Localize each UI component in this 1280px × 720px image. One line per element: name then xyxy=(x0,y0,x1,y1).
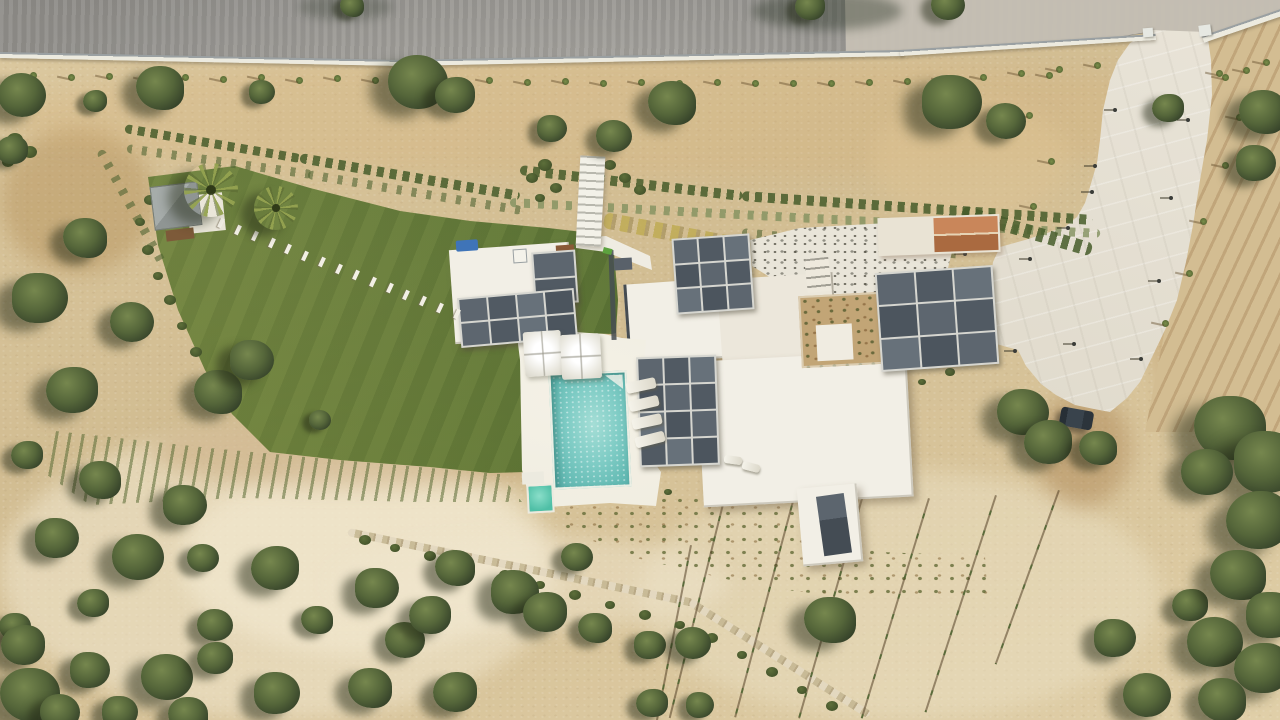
shrub xyxy=(424,551,436,561)
glass-pane xyxy=(516,293,545,317)
glass-pane xyxy=(920,334,959,367)
patio-umbrella xyxy=(560,333,602,380)
olive-tree xyxy=(79,461,121,499)
olive-tree xyxy=(77,589,109,618)
roadside-sapling xyxy=(220,76,227,83)
glass-pane xyxy=(533,252,575,278)
roadside-sapling xyxy=(68,74,75,81)
pool-corner-step xyxy=(605,375,623,390)
glass-pane xyxy=(877,273,916,306)
glass-pane xyxy=(915,270,954,303)
glass-pane xyxy=(664,358,689,384)
olive-tree xyxy=(46,367,98,414)
roadside-sapling xyxy=(486,77,493,84)
olive-tree xyxy=(561,543,593,572)
olive-tree xyxy=(675,627,711,659)
olive-tree xyxy=(795,0,825,20)
glass-pane xyxy=(724,236,749,260)
olive-tree xyxy=(686,692,714,717)
shrub xyxy=(826,701,838,711)
olive-tree xyxy=(435,550,475,586)
terracotta-roof xyxy=(933,216,998,252)
glass-pane xyxy=(675,264,700,288)
driveway-sapling xyxy=(1046,72,1053,79)
driveway-sapling xyxy=(1162,320,1169,327)
shrub xyxy=(190,347,202,357)
olive-tree xyxy=(194,370,242,413)
olive-tree xyxy=(1024,420,1072,463)
olive-tree xyxy=(596,120,632,152)
roadside-sapling xyxy=(1243,67,1250,74)
roadside-sapling xyxy=(1018,70,1025,77)
olive-tree xyxy=(11,441,43,470)
roof-solar-panel xyxy=(816,493,852,556)
olive-tree xyxy=(0,136,28,165)
olive-tree xyxy=(1234,431,1280,492)
roadside-sapling xyxy=(980,74,987,81)
glass-pane xyxy=(488,295,517,319)
olive-tree xyxy=(12,273,68,323)
olive-tree xyxy=(254,672,300,713)
olive-tree xyxy=(112,534,164,581)
olive-tree xyxy=(1226,491,1280,549)
olive-tree xyxy=(35,518,79,558)
garden-staircase xyxy=(576,155,606,246)
roadside-sapling xyxy=(296,77,303,84)
gate-post xyxy=(1198,24,1211,37)
shrub xyxy=(359,535,371,545)
shrub xyxy=(634,185,646,195)
courtyard-garden xyxy=(798,292,884,368)
roadside-sapling xyxy=(904,78,911,85)
shrub xyxy=(639,610,651,620)
entry-mat xyxy=(614,258,633,271)
driveway-sapling xyxy=(1186,270,1193,277)
olive-tree xyxy=(1123,673,1171,716)
glass-pane xyxy=(726,260,751,284)
glass-pane xyxy=(690,357,715,383)
olive-tree xyxy=(141,654,193,701)
olive-tree xyxy=(433,672,477,712)
main-house-living-skylight xyxy=(636,355,720,468)
olive-tree xyxy=(251,546,299,589)
light-post xyxy=(1157,279,1161,283)
shrub xyxy=(538,159,552,171)
light-post xyxy=(1090,190,1094,194)
shrub xyxy=(569,590,581,600)
olive-tree xyxy=(348,668,392,708)
olive-tree xyxy=(1094,619,1136,657)
blue-garden-bench xyxy=(456,239,479,252)
roadside-sapling xyxy=(1222,74,1229,81)
roadside-sapling xyxy=(524,79,531,86)
driveway-sapling xyxy=(1048,158,1055,165)
glass-pane xyxy=(545,290,574,314)
aerial-photograph-villa-estate xyxy=(0,0,1280,720)
light-post xyxy=(1013,349,1017,353)
olive-tree xyxy=(1198,678,1246,720)
olive-tree xyxy=(110,302,154,342)
roadside-sapling xyxy=(828,80,835,87)
olive-tree xyxy=(168,697,208,720)
driveway-sapling xyxy=(1030,203,1037,210)
driveway-sapling xyxy=(1200,218,1207,225)
glass-pane xyxy=(677,288,702,312)
glass-pane xyxy=(693,438,718,464)
swimming-pool xyxy=(549,370,632,489)
olive-tree xyxy=(309,410,331,430)
roadside-sapling xyxy=(372,77,379,84)
olive-tree xyxy=(435,77,475,113)
roadside-sapling xyxy=(1094,62,1101,69)
shrub xyxy=(164,295,176,305)
patio-umbrella xyxy=(522,330,563,378)
light-post xyxy=(1072,342,1076,346)
roadside-sapling xyxy=(600,80,607,87)
driveway-sapling xyxy=(1216,70,1223,77)
olive-tree xyxy=(634,631,666,660)
glass-pane xyxy=(728,285,753,309)
olive-tree xyxy=(1246,592,1280,639)
kiddie-pool xyxy=(526,483,554,513)
olive-tree xyxy=(1152,94,1184,123)
roadside-sapling xyxy=(638,79,645,86)
roadside-sapling xyxy=(562,78,569,85)
olive-tree xyxy=(136,66,184,109)
light-post xyxy=(1028,257,1032,261)
roadside-sapling xyxy=(866,79,873,86)
olive-tree xyxy=(804,597,856,644)
driveway-sapling xyxy=(1222,162,1229,169)
glass-pane xyxy=(702,286,727,310)
olive-tree xyxy=(230,340,274,380)
roadside-sapling xyxy=(790,80,797,87)
olive-tree xyxy=(355,568,399,608)
olive-tree xyxy=(537,115,567,142)
glass-pane xyxy=(881,337,920,370)
glass-pane xyxy=(692,411,717,437)
olive-tree xyxy=(197,609,233,641)
olive-tree xyxy=(301,606,333,635)
shrub xyxy=(142,245,154,255)
roadside-sapling xyxy=(752,80,759,87)
shrub xyxy=(766,667,778,677)
light-post xyxy=(1169,196,1173,200)
roadside-sapling xyxy=(714,79,721,86)
glass-pane xyxy=(701,262,726,286)
roadside-sapling xyxy=(1263,59,1270,66)
olive-tree xyxy=(922,75,982,129)
glass-pane xyxy=(958,332,997,365)
glass-pane xyxy=(666,412,691,438)
glass-pane xyxy=(956,299,995,332)
glass-pane xyxy=(699,237,724,261)
olive-tree xyxy=(648,81,696,124)
olive-tree xyxy=(578,613,612,644)
glass-pane xyxy=(954,267,993,300)
shrub xyxy=(550,183,562,193)
roadside-sapling xyxy=(1056,66,1063,73)
olive-tree xyxy=(986,103,1026,139)
glass-pane xyxy=(879,305,918,338)
palm-tree xyxy=(254,186,298,230)
light-post xyxy=(1093,164,1097,168)
light-post xyxy=(1066,226,1070,230)
palm-tree xyxy=(184,163,238,217)
olive-tree xyxy=(249,80,275,103)
glass-pane xyxy=(459,298,488,322)
glass-pane xyxy=(691,384,716,410)
olive-tree xyxy=(163,485,207,525)
olive-tree xyxy=(197,642,233,674)
olive-tree xyxy=(1079,431,1117,465)
outbuilding-base xyxy=(877,214,1000,256)
glass-pane xyxy=(665,385,690,411)
roadside-sapling xyxy=(106,73,113,80)
olive-tree xyxy=(1,625,45,665)
main-house-upper-skylight xyxy=(671,233,754,314)
shrub xyxy=(619,173,631,183)
shrub xyxy=(526,173,538,183)
light-post xyxy=(1139,357,1143,361)
light-post xyxy=(1186,118,1190,122)
east-pavilion-skylight xyxy=(875,265,1000,372)
terrace-steps xyxy=(804,257,831,293)
olive-tree xyxy=(0,73,46,116)
pool-pump-box xyxy=(522,471,545,484)
olive-tree xyxy=(187,544,219,573)
glass-pane xyxy=(667,439,692,465)
olive-tree xyxy=(83,90,107,112)
light-post xyxy=(1113,108,1117,112)
glass-pane xyxy=(490,319,519,343)
olive-tree xyxy=(1181,449,1233,496)
olive-tree xyxy=(70,652,110,688)
olive-tree xyxy=(63,218,107,258)
olive-tree xyxy=(1236,145,1276,181)
glass-pane xyxy=(674,239,699,263)
roof-vent xyxy=(513,249,528,264)
glass-pane xyxy=(918,302,957,335)
gate-post xyxy=(1143,28,1154,38)
shrub xyxy=(604,160,616,170)
olive-tree xyxy=(409,596,451,634)
olive-tree xyxy=(1172,589,1208,621)
olive-tree xyxy=(636,689,668,718)
main-house-big-roof xyxy=(696,351,913,508)
driveway-sapling xyxy=(1026,112,1033,119)
extension-roof xyxy=(797,484,864,567)
olive-tree xyxy=(523,592,567,632)
glass-pane xyxy=(461,322,490,346)
roadside-sapling xyxy=(334,75,341,82)
courtyard-pavers xyxy=(816,323,854,361)
